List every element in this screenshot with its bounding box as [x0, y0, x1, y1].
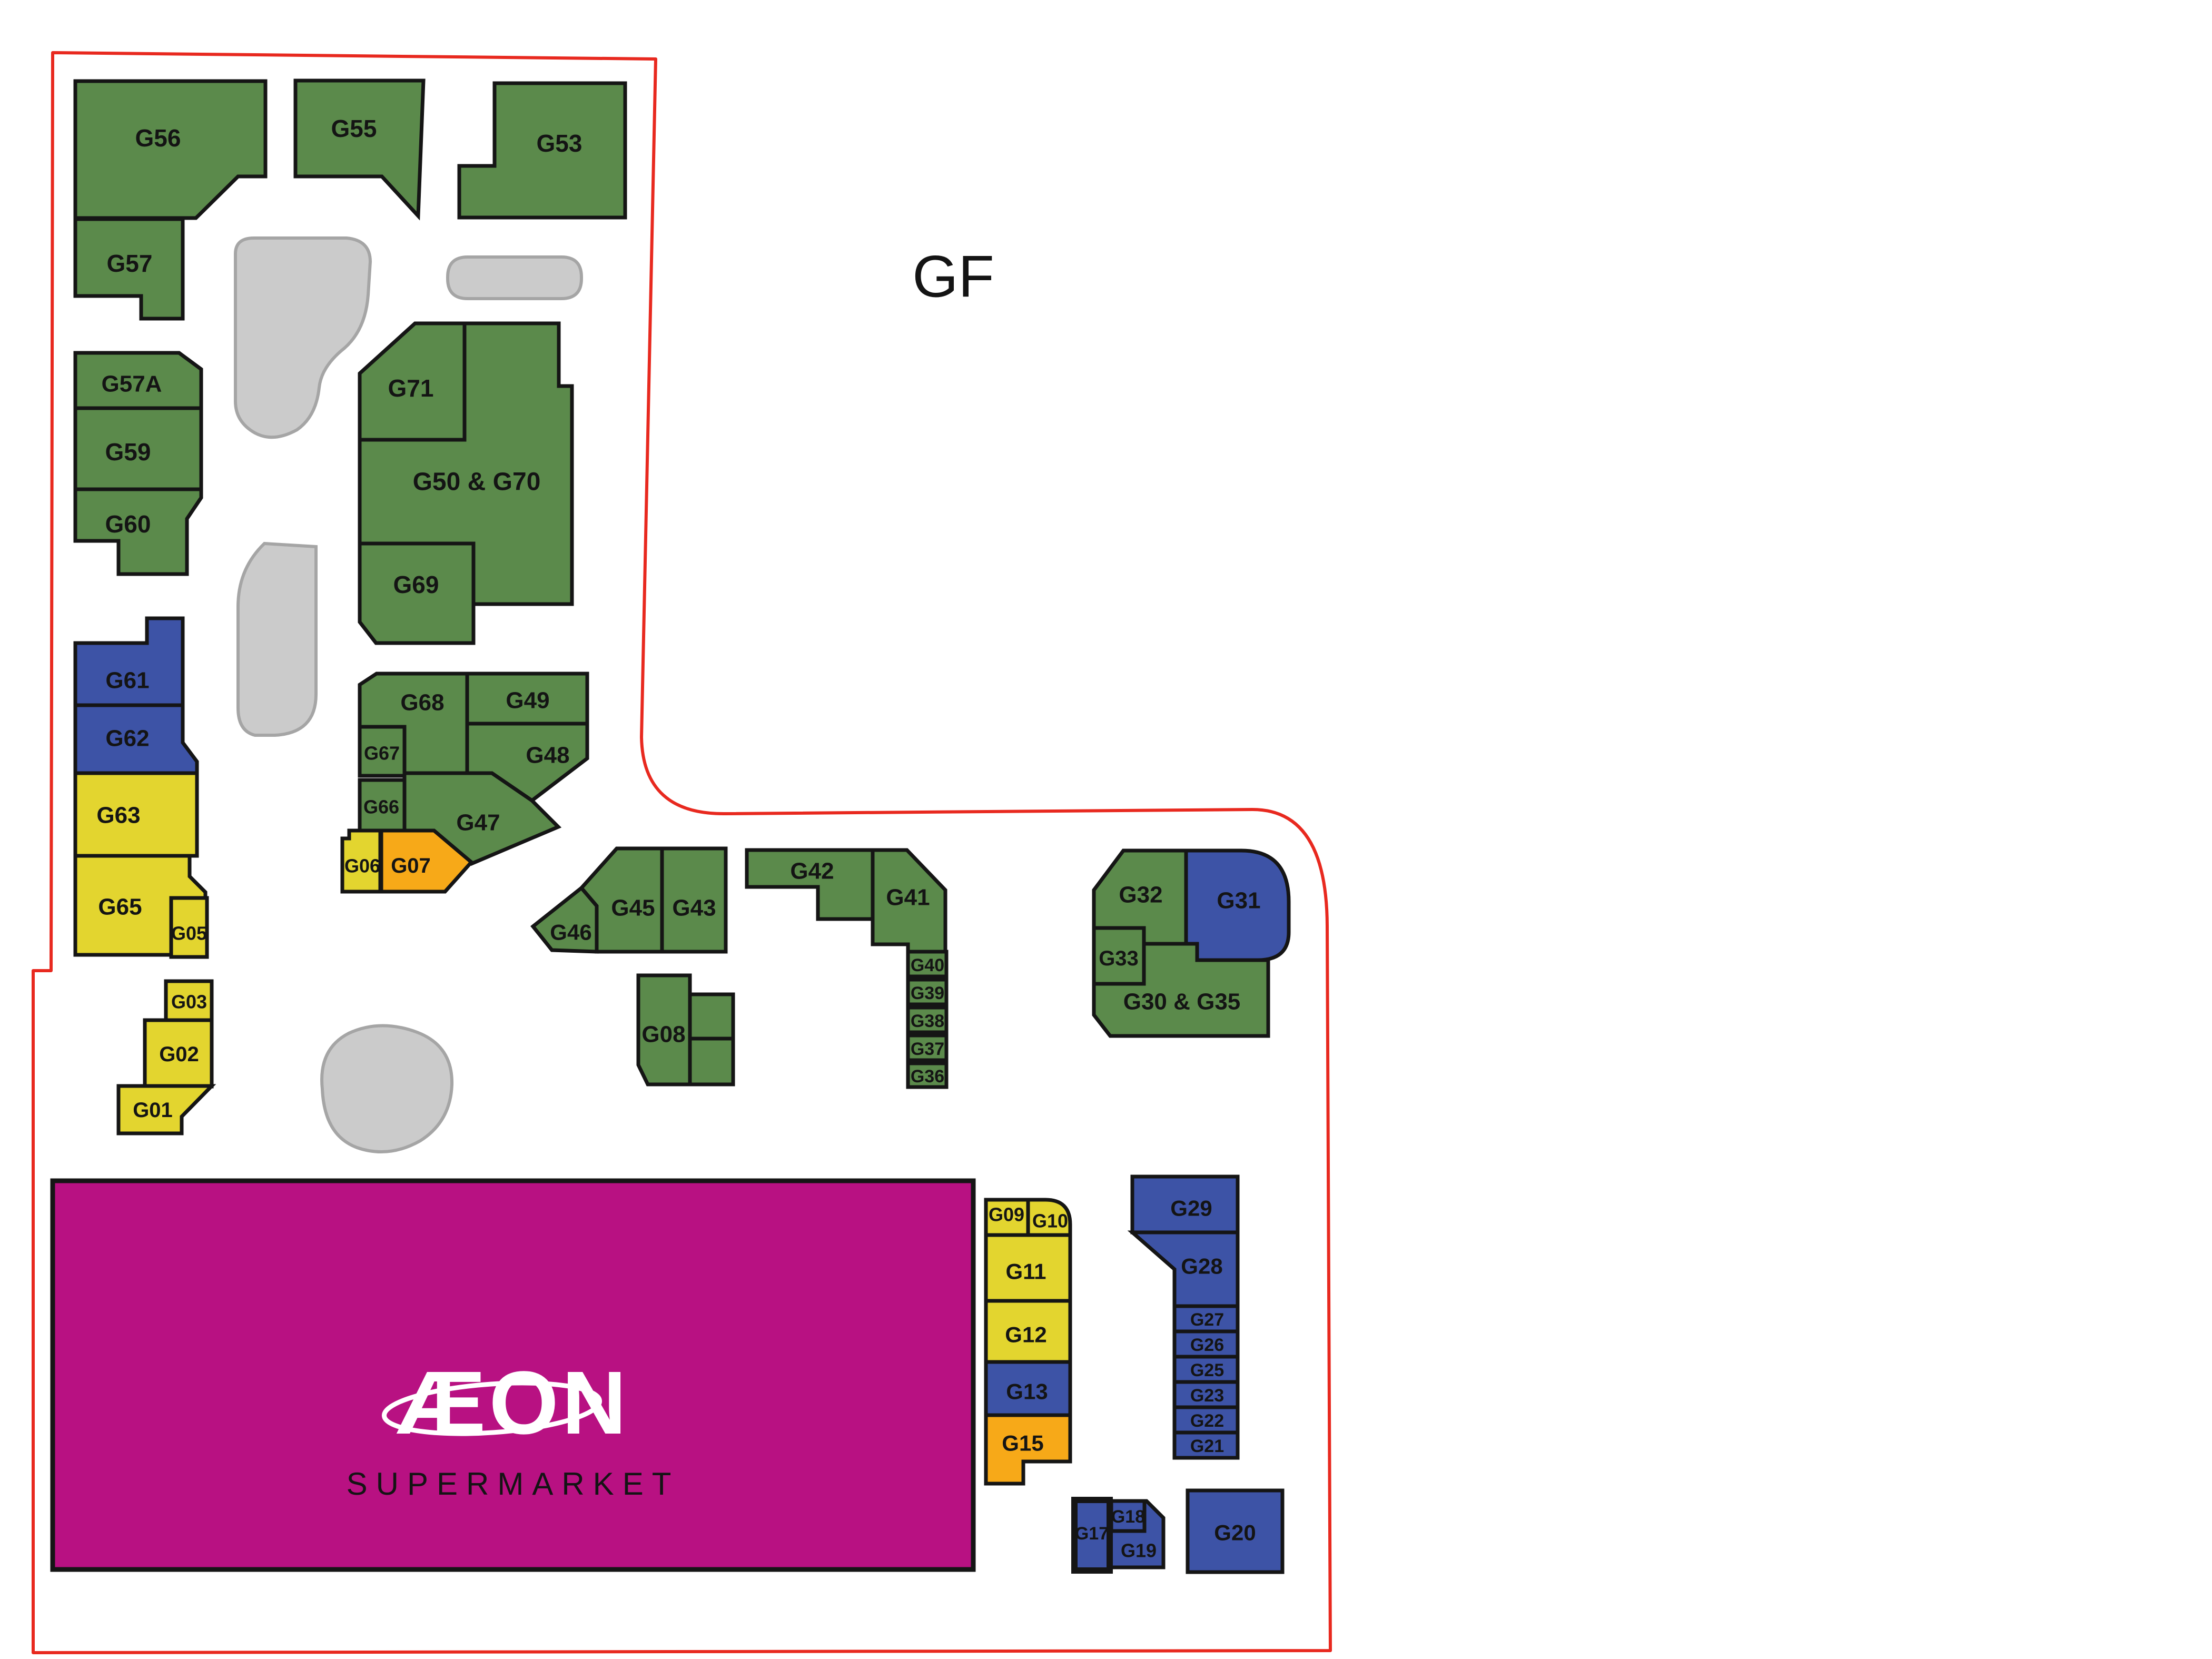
unit-label: G55 [331, 115, 377, 142]
unit-label: G45 [611, 895, 655, 921]
unit-label: G47 [456, 810, 500, 836]
unit-label: G03 [171, 991, 207, 1013]
unit-label: G69 [393, 571, 439, 598]
unit-label: G02 [159, 1043, 199, 1066]
unit-label: G12 [1005, 1322, 1046, 1347]
unit-label: G63 [96, 803, 140, 828]
unit-label: G28 [1181, 1254, 1222, 1279]
unit-label: G22 [1190, 1411, 1224, 1431]
unit-label: G71 [388, 374, 434, 402]
unit-label: G33 [1099, 947, 1139, 970]
unit-label: G41 [886, 885, 930, 911]
unit-label: G56 [135, 124, 181, 152]
unit-label: G67 [364, 743, 400, 764]
unit-label: G27 [1190, 1310, 1224, 1330]
unit-label: G61 [105, 668, 149, 694]
mall-floor-plan: G56G57G55G53G57AG59G60G71G50 & G70G69G61… [0, 0, 2212, 1659]
unit-label: G37 [911, 1039, 944, 1059]
walkway-blob-2 [448, 257, 581, 299]
unit-label: G25 [1190, 1360, 1224, 1380]
unit-label: G07 [391, 854, 431, 877]
unit-label: G15 [1002, 1431, 1043, 1456]
floor-label: GF [912, 244, 994, 310]
unit-label: G01 [133, 1099, 173, 1122]
unit-label: G60 [105, 510, 151, 538]
unit-label: G38 [911, 1011, 944, 1031]
unit-label: G46 [550, 920, 591, 945]
unit-label: G57A [102, 371, 162, 397]
aeon-subtitle: SUPERMARKET [347, 1466, 680, 1502]
unit-G55[interactable] [295, 81, 423, 216]
unit-label: G59 [105, 438, 151, 466]
unit-label: G65 [98, 894, 142, 920]
unit-label: G30 & G35 [1123, 989, 1241, 1015]
unit-label: G11 [1005, 1259, 1046, 1284]
walkway-blob-3 [238, 544, 316, 735]
unit-label: G66 [363, 796, 399, 818]
unit-label: G19 [1121, 1540, 1157, 1562]
unit-label: G18 [1111, 1507, 1145, 1527]
walkway-blob-4 [322, 1025, 452, 1152]
walkway-blob-1 [235, 238, 370, 437]
unit-label: G57 [107, 250, 153, 277]
unit-label: G13 [1006, 1379, 1048, 1404]
unit-label: G43 [672, 895, 716, 921]
unit-label: G48 [526, 743, 569, 768]
unit-label: G49 [506, 688, 549, 714]
unit-label: G10 [1032, 1210, 1068, 1232]
aeon-logo: ÆON [397, 1353, 630, 1453]
unit-label: G31 [1217, 888, 1260, 914]
unit-label: G36 [911, 1066, 944, 1087]
unit-label: G39 [911, 983, 944, 1003]
unit-label: G06 [344, 855, 380, 877]
unit-label: G32 [1119, 882, 1162, 908]
unit-label: G17 [1075, 1524, 1109, 1544]
unit-label: G53 [537, 130, 582, 157]
unit-label: G29 [1170, 1196, 1212, 1221]
unit-label: G26 [1190, 1335, 1224, 1355]
unit-label: G20 [1214, 1520, 1256, 1545]
unit-label: G23 [1190, 1386, 1224, 1406]
unit-label: G62 [105, 726, 149, 752]
unit-label: G68 [400, 690, 444, 716]
unit-label: G40 [911, 955, 944, 975]
unit-label: G09 [989, 1204, 1024, 1226]
unit-label: G42 [790, 858, 834, 884]
unit-label: G08 [641, 1022, 685, 1048]
unit-label: G21 [1190, 1436, 1224, 1456]
unit-label: G05 [171, 923, 207, 944]
unit-label: G50 & G70 [413, 468, 541, 496]
